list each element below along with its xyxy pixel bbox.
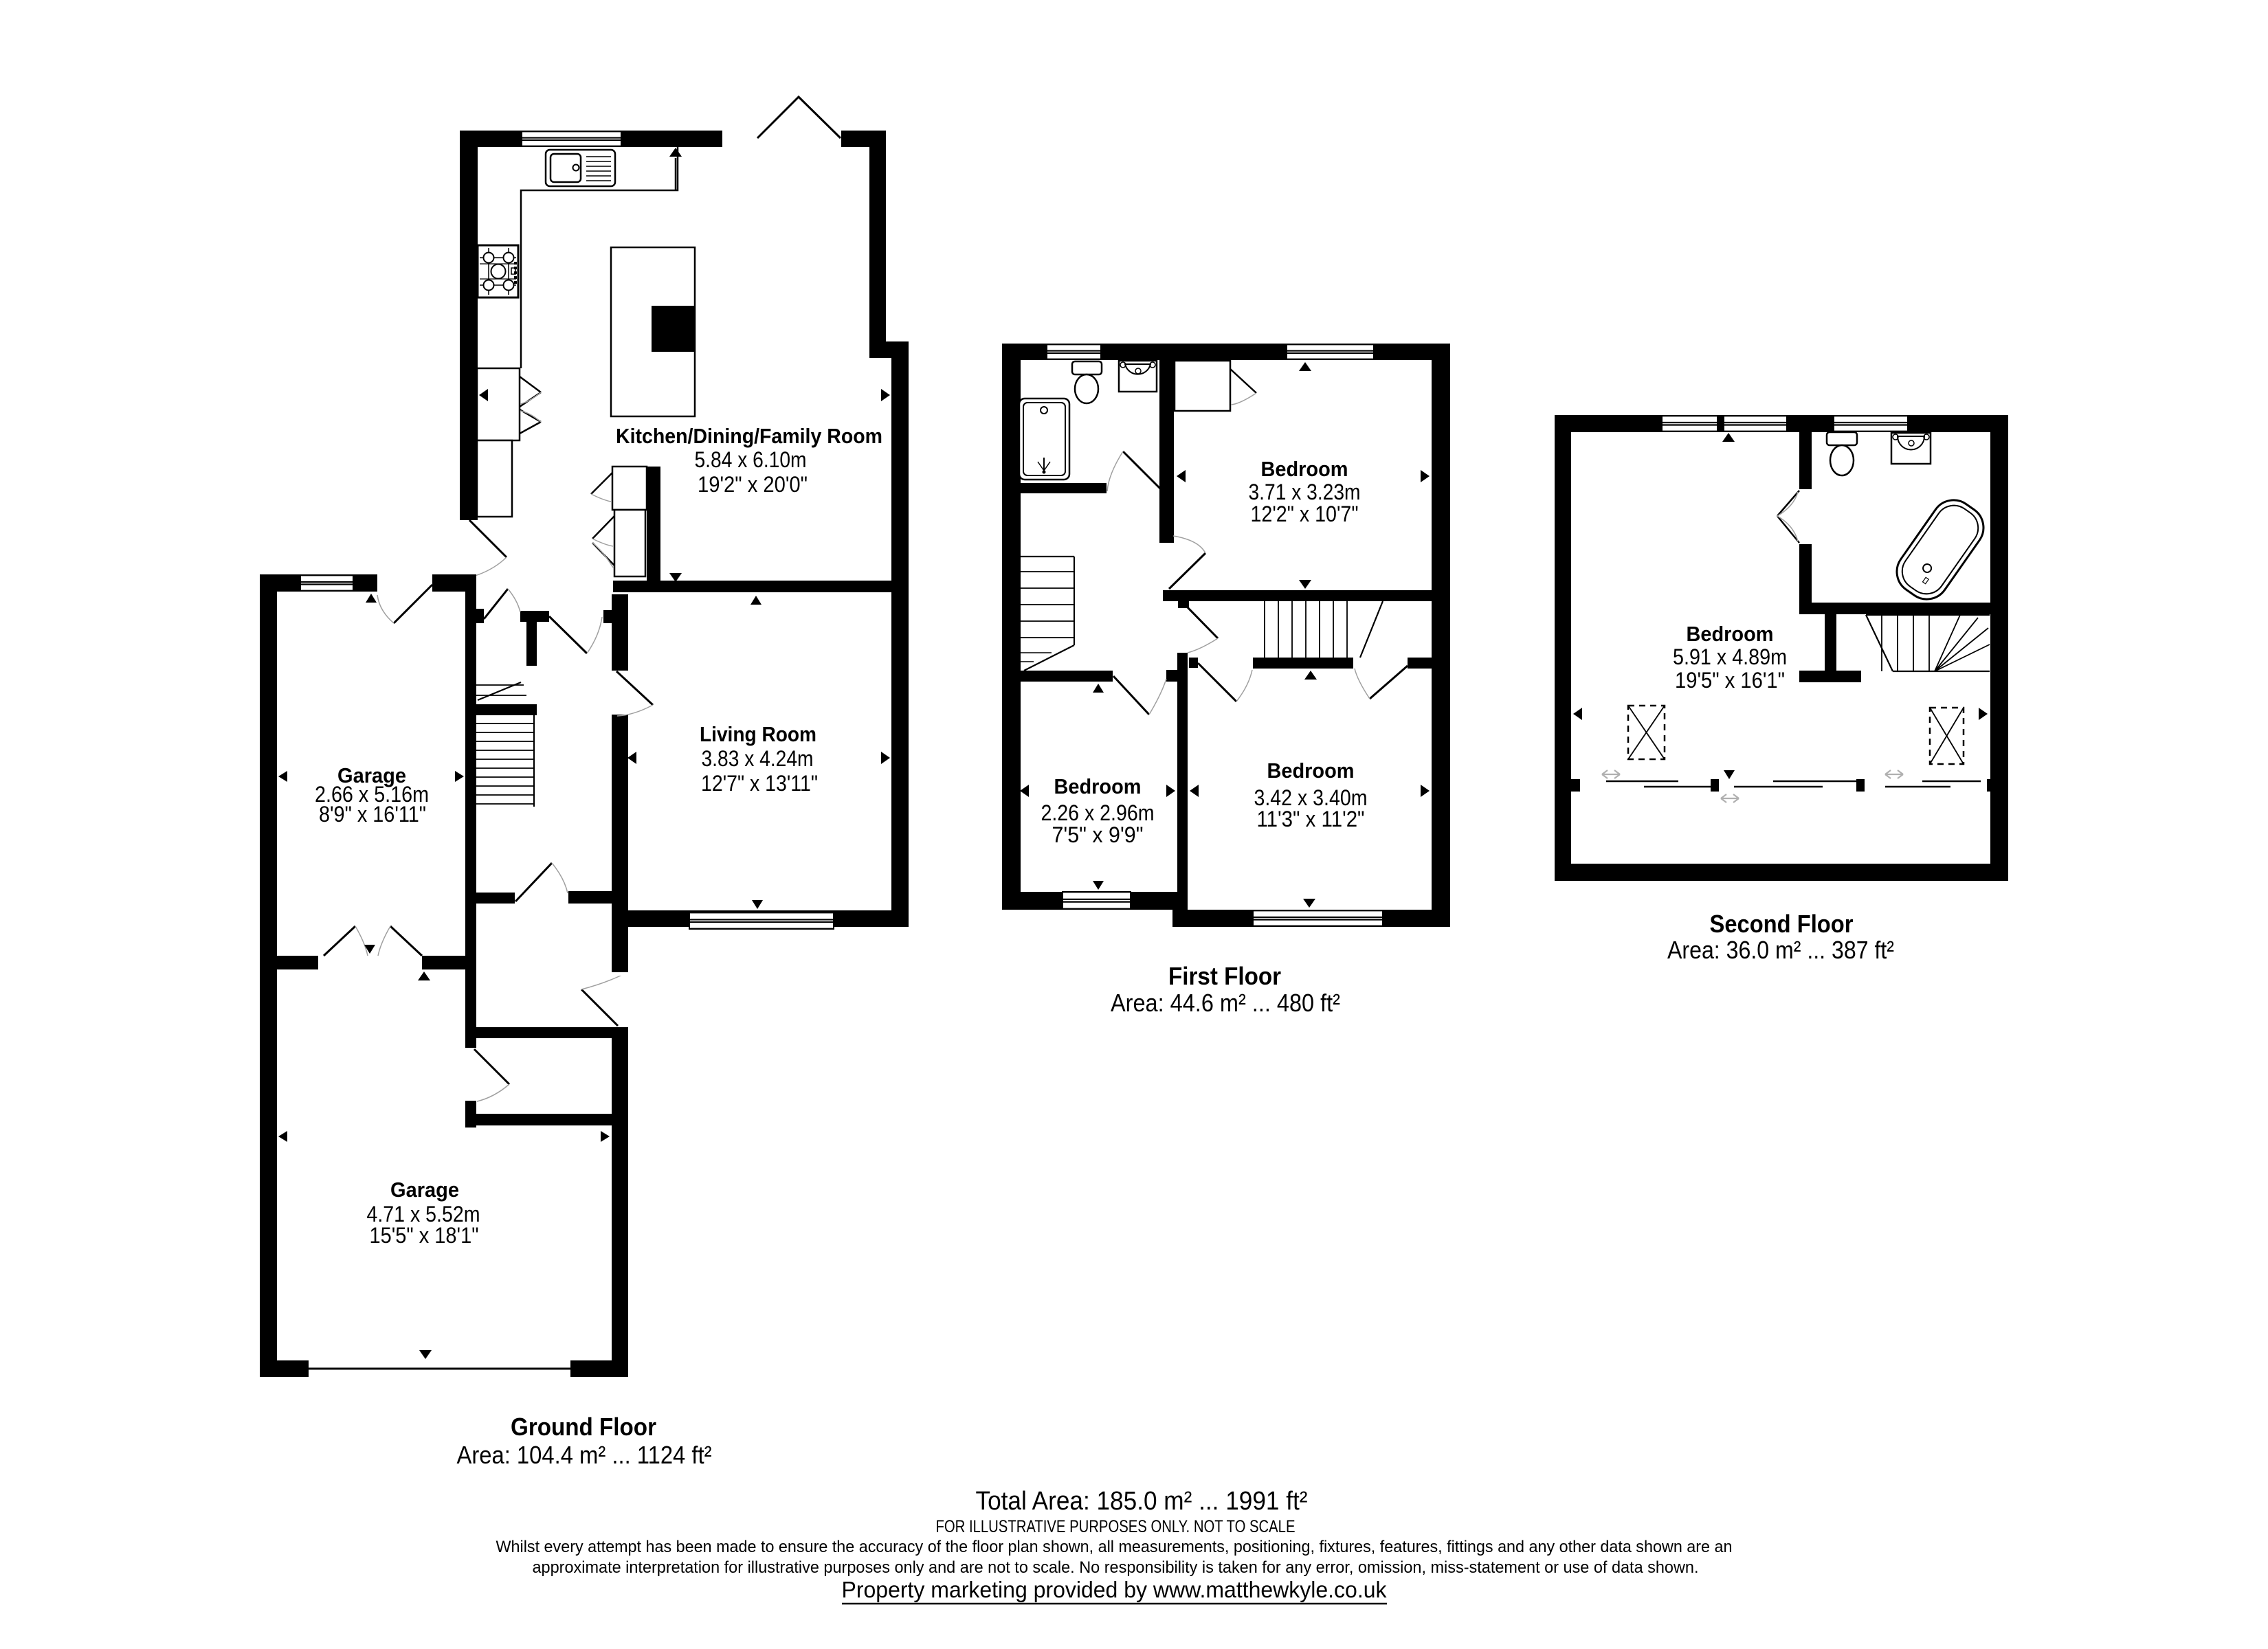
svg-text:Kitchen/Dining/Family Room: Kitchen/Dining/Family Room — [616, 424, 882, 448]
svg-text:12'7" x 13'11": 12'7" x 13'11" — [701, 771, 818, 796]
svg-text:19'5" x 16'1": 19'5" x 16'1" — [1675, 668, 1785, 693]
svg-text:Garage: Garage — [390, 1178, 459, 1202]
svg-text:Bedroom: Bedroom — [1267, 759, 1355, 783]
svg-text:15'5" x 18'1": 15'5" x 18'1" — [370, 1223, 479, 1248]
svg-text:approximate interpretation for: approximate interpretation for illustrat… — [533, 1558, 1699, 1577]
svg-text:Bedroom: Bedroom — [1054, 774, 1142, 798]
svg-text:12'2" x 10'7": 12'2" x 10'7" — [1251, 502, 1359, 526]
svg-text:2.26 x 2.96m: 2.26 x 2.96m — [1041, 800, 1155, 825]
svg-text:Whilst every attempt has been: Whilst every attempt has been made to en… — [496, 1538, 1733, 1556]
svg-text:8'9" x 16'11": 8'9" x 16'11" — [319, 802, 426, 827]
svg-text:Ground Floor: Ground Floor — [511, 1413, 656, 1441]
svg-text:3.83 x 4.24m: 3.83 x 4.24m — [702, 746, 814, 771]
svg-text:3.71 x 3.23m: 3.71 x 3.23m — [1249, 480, 1361, 504]
svg-text:Total Area: 185.0 m² ... 1991: Total Area: 185.0 m² ... 1991 ft² — [976, 1487, 1308, 1516]
svg-text:First Floor: First Floor — [1168, 962, 1281, 990]
svg-text:Area: 44.6 m² ... 480 ft²: Area: 44.6 m² ... 480 ft² — [1111, 989, 1340, 1017]
svg-text:Area: 104.4 m² ... 1124 ft²: Area: 104.4 m² ... 1124 ft² — [457, 1441, 712, 1469]
svg-text:5.84 x 6.10m: 5.84 x 6.10m — [695, 447, 807, 472]
svg-text:Living Room: Living Room — [700, 722, 816, 746]
svg-text:Property marketing provided by: Property marketing provided by www.matth… — [842, 1577, 1387, 1602]
svg-text:7'5" x 9'9": 7'5" x 9'9" — [1052, 822, 1144, 847]
svg-text:Bedroom: Bedroom — [1687, 622, 1774, 646]
svg-text:19'2" x 20'0": 19'2" x 20'0" — [698, 472, 808, 497]
svg-text:11'3" x 11'2": 11'3" x 11'2" — [1257, 807, 1365, 831]
svg-text:Area: 36.0 m² ... 387 ft²: Area: 36.0 m² ... 387 ft² — [1667, 936, 1894, 964]
svg-text:5.91 x 4.89m: 5.91 x 4.89m — [1673, 644, 1787, 669]
svg-text:FOR ILLUSTRATIVE PURPOSES ONLY: FOR ILLUSTRATIVE PURPOSES ONLY. NOT TO S… — [936, 1517, 1296, 1536]
svg-text:Bedroom: Bedroom — [1261, 457, 1348, 481]
svg-text:Second Floor: Second Floor — [1710, 910, 1854, 938]
